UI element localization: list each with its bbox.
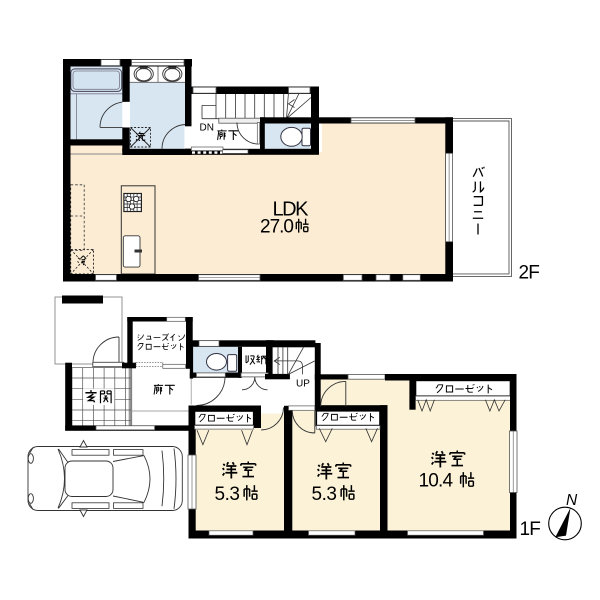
svg-text:1F: 1F — [520, 519, 541, 540]
svg-text:27.0: 27.0 — [260, 217, 293, 238]
svg-text:UP: UP — [296, 379, 310, 390]
svg-text:DN: DN — [200, 123, 214, 134]
svg-text:5.3: 5.3 — [312, 484, 337, 505]
svg-text:N: N — [566, 492, 578, 509]
svg-text:10.4: 10.4 — [419, 471, 454, 492]
svg-text:2F: 2F — [519, 263, 540, 284]
svg-text:5.3: 5.3 — [215, 484, 240, 505]
